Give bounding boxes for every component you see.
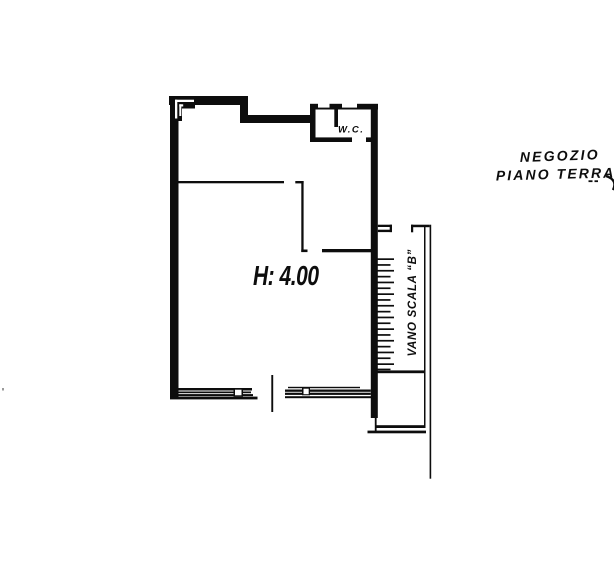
svg-text:W.C.: W.C. [338, 125, 364, 136]
svg-text:H: 4.00: H: 4.00 [253, 261, 319, 291]
svg-text:VANO SCALA “B”: VANO SCALA “B” [407, 249, 419, 357]
svg-text:NEGOZIO: NEGOZIO [520, 146, 600, 165]
